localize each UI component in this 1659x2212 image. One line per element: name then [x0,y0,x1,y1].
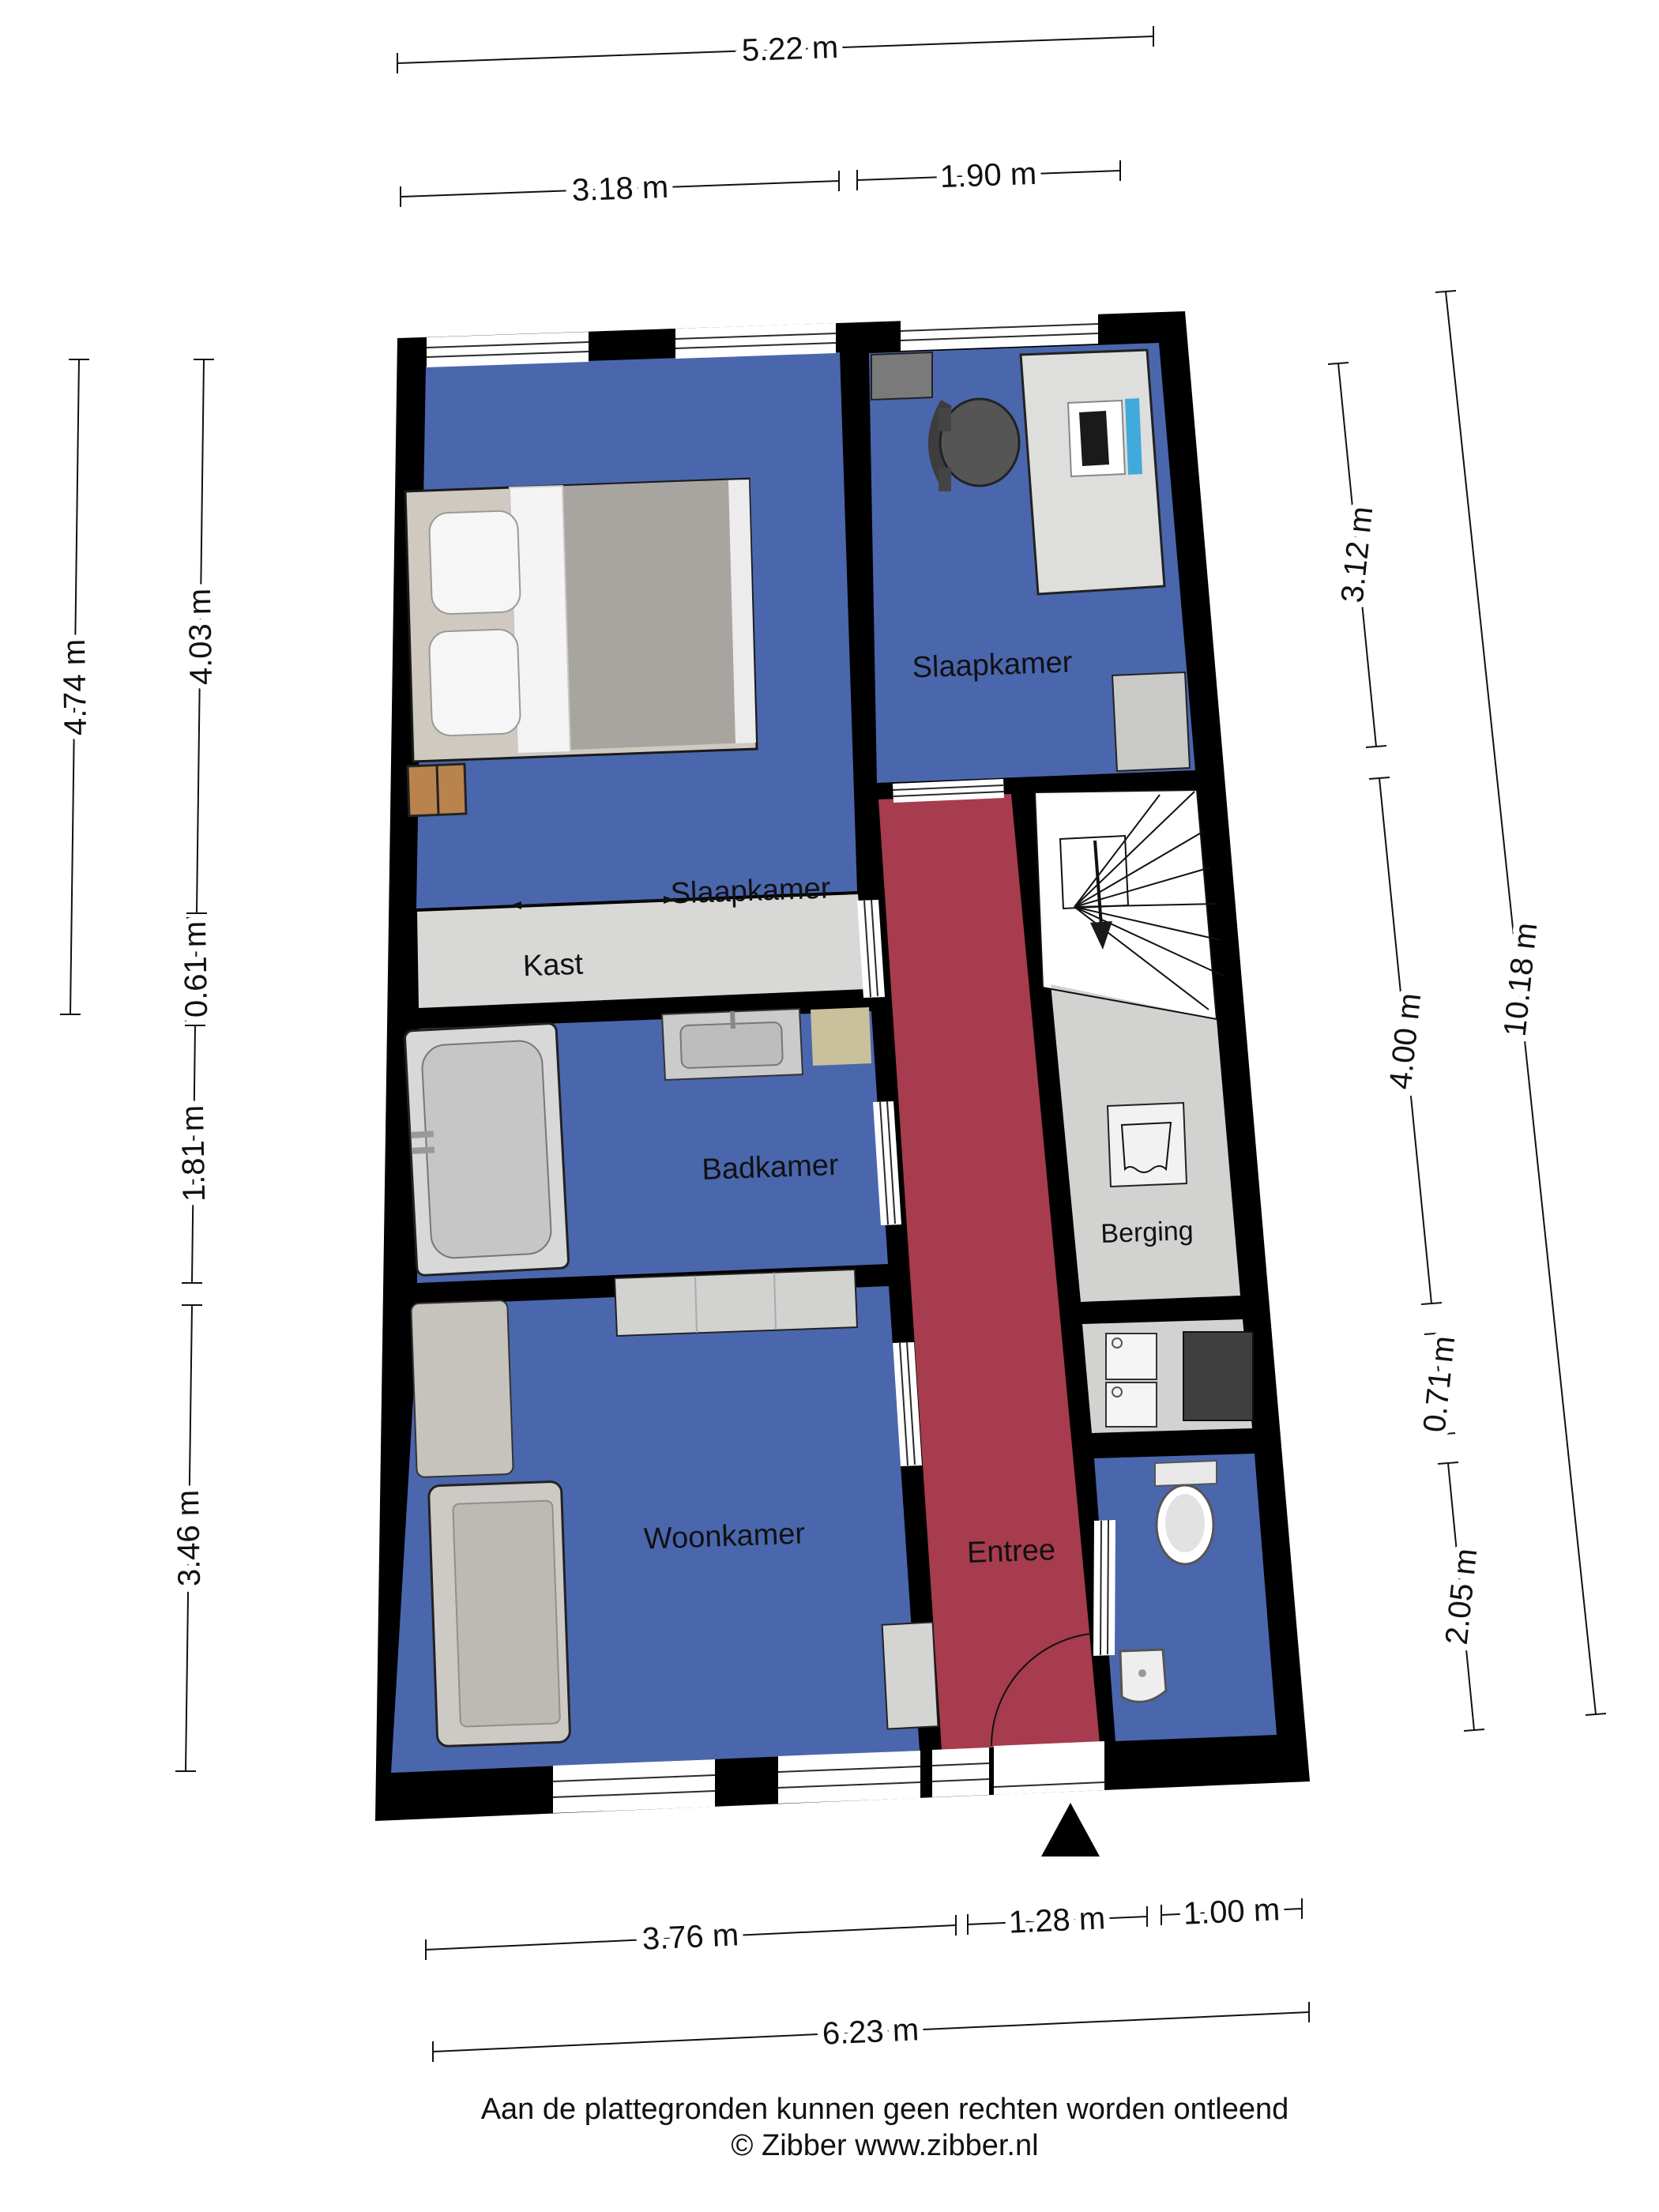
washbasin [662,1009,803,1080]
side-cabinet [882,1622,939,1729]
label-badkamer: Badkamer [702,1149,840,1187]
footer-copyright: © Zibber www.zibber.nl [731,2129,1038,2162]
svg-text:0.71 m: 0.71 m [1417,1334,1462,1434]
boiler-unit [1183,1332,1253,1420]
svg-text:4.74 m: 4.74 m [57,638,93,735]
svg-text:4.03 m: 4.03 m [182,588,219,685]
door-toilet [1093,1520,1115,1656]
label-slaapkamer-2: Slaapkamer [912,645,1073,684]
nightstand [408,764,466,816]
cabinet-corner [1112,672,1190,771]
washing-machine-2 [1106,1382,1157,1427]
utility-sink [1108,1103,1187,1187]
laptop-keyboard [1079,411,1109,466]
dim-right-storage: 0.71 m [1417,1333,1462,1435]
svg-text:3.76 m: 3.76 m [641,1917,739,1957]
svg-text:0.61 m: 0.61 m [178,920,214,1018]
svg-text:1.28 m: 1.28 m [1008,1901,1106,1940]
dim-bottom-toilet: 1.00 m [1161,1892,1302,1932]
bath-mat [811,1007,871,1066]
room-kast-floor [417,894,867,1008]
entrance-arrow [1041,1803,1100,1856]
svg-text:1.81 m: 1.81 m [175,1104,212,1202]
bathtub [404,1023,569,1276]
toilet [1155,1461,1217,1564]
svg-text:6.23 m: 6.23 m [822,2012,920,2052]
dim-right-toilet: 2.05 m [1438,1462,1484,1731]
laptop [1068,398,1142,476]
dim-bottom-entry: 1.28 m [968,1901,1147,1940]
building: Slaapkamer Slaapkamer Kast Badkamer Woon… [375,311,1310,1821]
window-bottom-2 [778,1751,920,1804]
washing-machine-1 [1106,1334,1157,1379]
footer-disclaimer: Aan de plattegronden kunnen geen rechten… [481,2093,1289,2126]
svg-text:5.22 m: 5.22 m [741,30,839,68]
armchair [411,1300,513,1477]
window-bottom-3 [932,1747,989,1797]
dim-left-bathroom: 1.81 m [175,1025,212,1283]
bathtub-faucet [412,1130,434,1138]
dim-right-total: 10.18 m [1435,291,1606,1715]
label-kast: Kast [522,948,584,984]
dim-top-total: 5.22 m [397,26,1153,73]
dim-left-total: 4.74 m [57,359,93,1014]
dim-bottom-living: 3.76 m [426,1915,956,1960]
label-entree: Entree [966,1533,1055,1570]
window-bottom-1 [553,1759,715,1813]
dim-top-left: 3.18 m [401,170,839,208]
svg-text:3.46 m: 3.46 m [171,1489,207,1586]
duvet [545,480,750,750]
dim-right-stairs: 4.00 m [1369,777,1442,1304]
svg-text:3.12 m: 3.12 m [1335,505,1380,604]
label-woonkamer: Woonkamer [643,1517,806,1556]
pillow-2 [429,629,521,736]
label-slaapkamer-1: Slaapkamer [670,871,831,910]
dim-top-right: 1.90 m [857,156,1120,194]
dim-right-bedroom: 3.12 m [1328,363,1386,747]
cabinet-small [871,352,932,400]
sofa [428,1481,570,1747]
svg-text:2.05 m: 2.05 m [1439,1547,1484,1646]
dim-left-closet: 0.61 m [178,918,214,1021]
svg-text:10.18 m: 10.18 m [1498,921,1544,1038]
corner-sink [1120,1650,1166,1702]
bed [405,479,757,762]
svg-text:1.00 m: 1.00 m [1183,1892,1281,1932]
sideboard [615,1270,857,1336]
window-top-1 [427,332,589,367]
pillow-1 [429,510,521,615]
svg-text:3.18 m: 3.18 m [571,170,669,208]
svg-text:1.90 m: 1.90 m [939,156,1037,194]
floorplan-canvas: Slaapkamer Slaapkamer Kast Badkamer Woon… [0,0,1659,2212]
dim-left-bedroom: 4.03 m [182,359,219,913]
window-top-2 [675,323,836,359]
svg-text:4.00 m: 4.00 m [1383,991,1428,1091]
dim-bottom-total: 6.23 m [433,2002,1309,2062]
label-berging: Berging [1100,1216,1194,1249]
dim-left-living: 3.46 m [171,1305,207,1771]
